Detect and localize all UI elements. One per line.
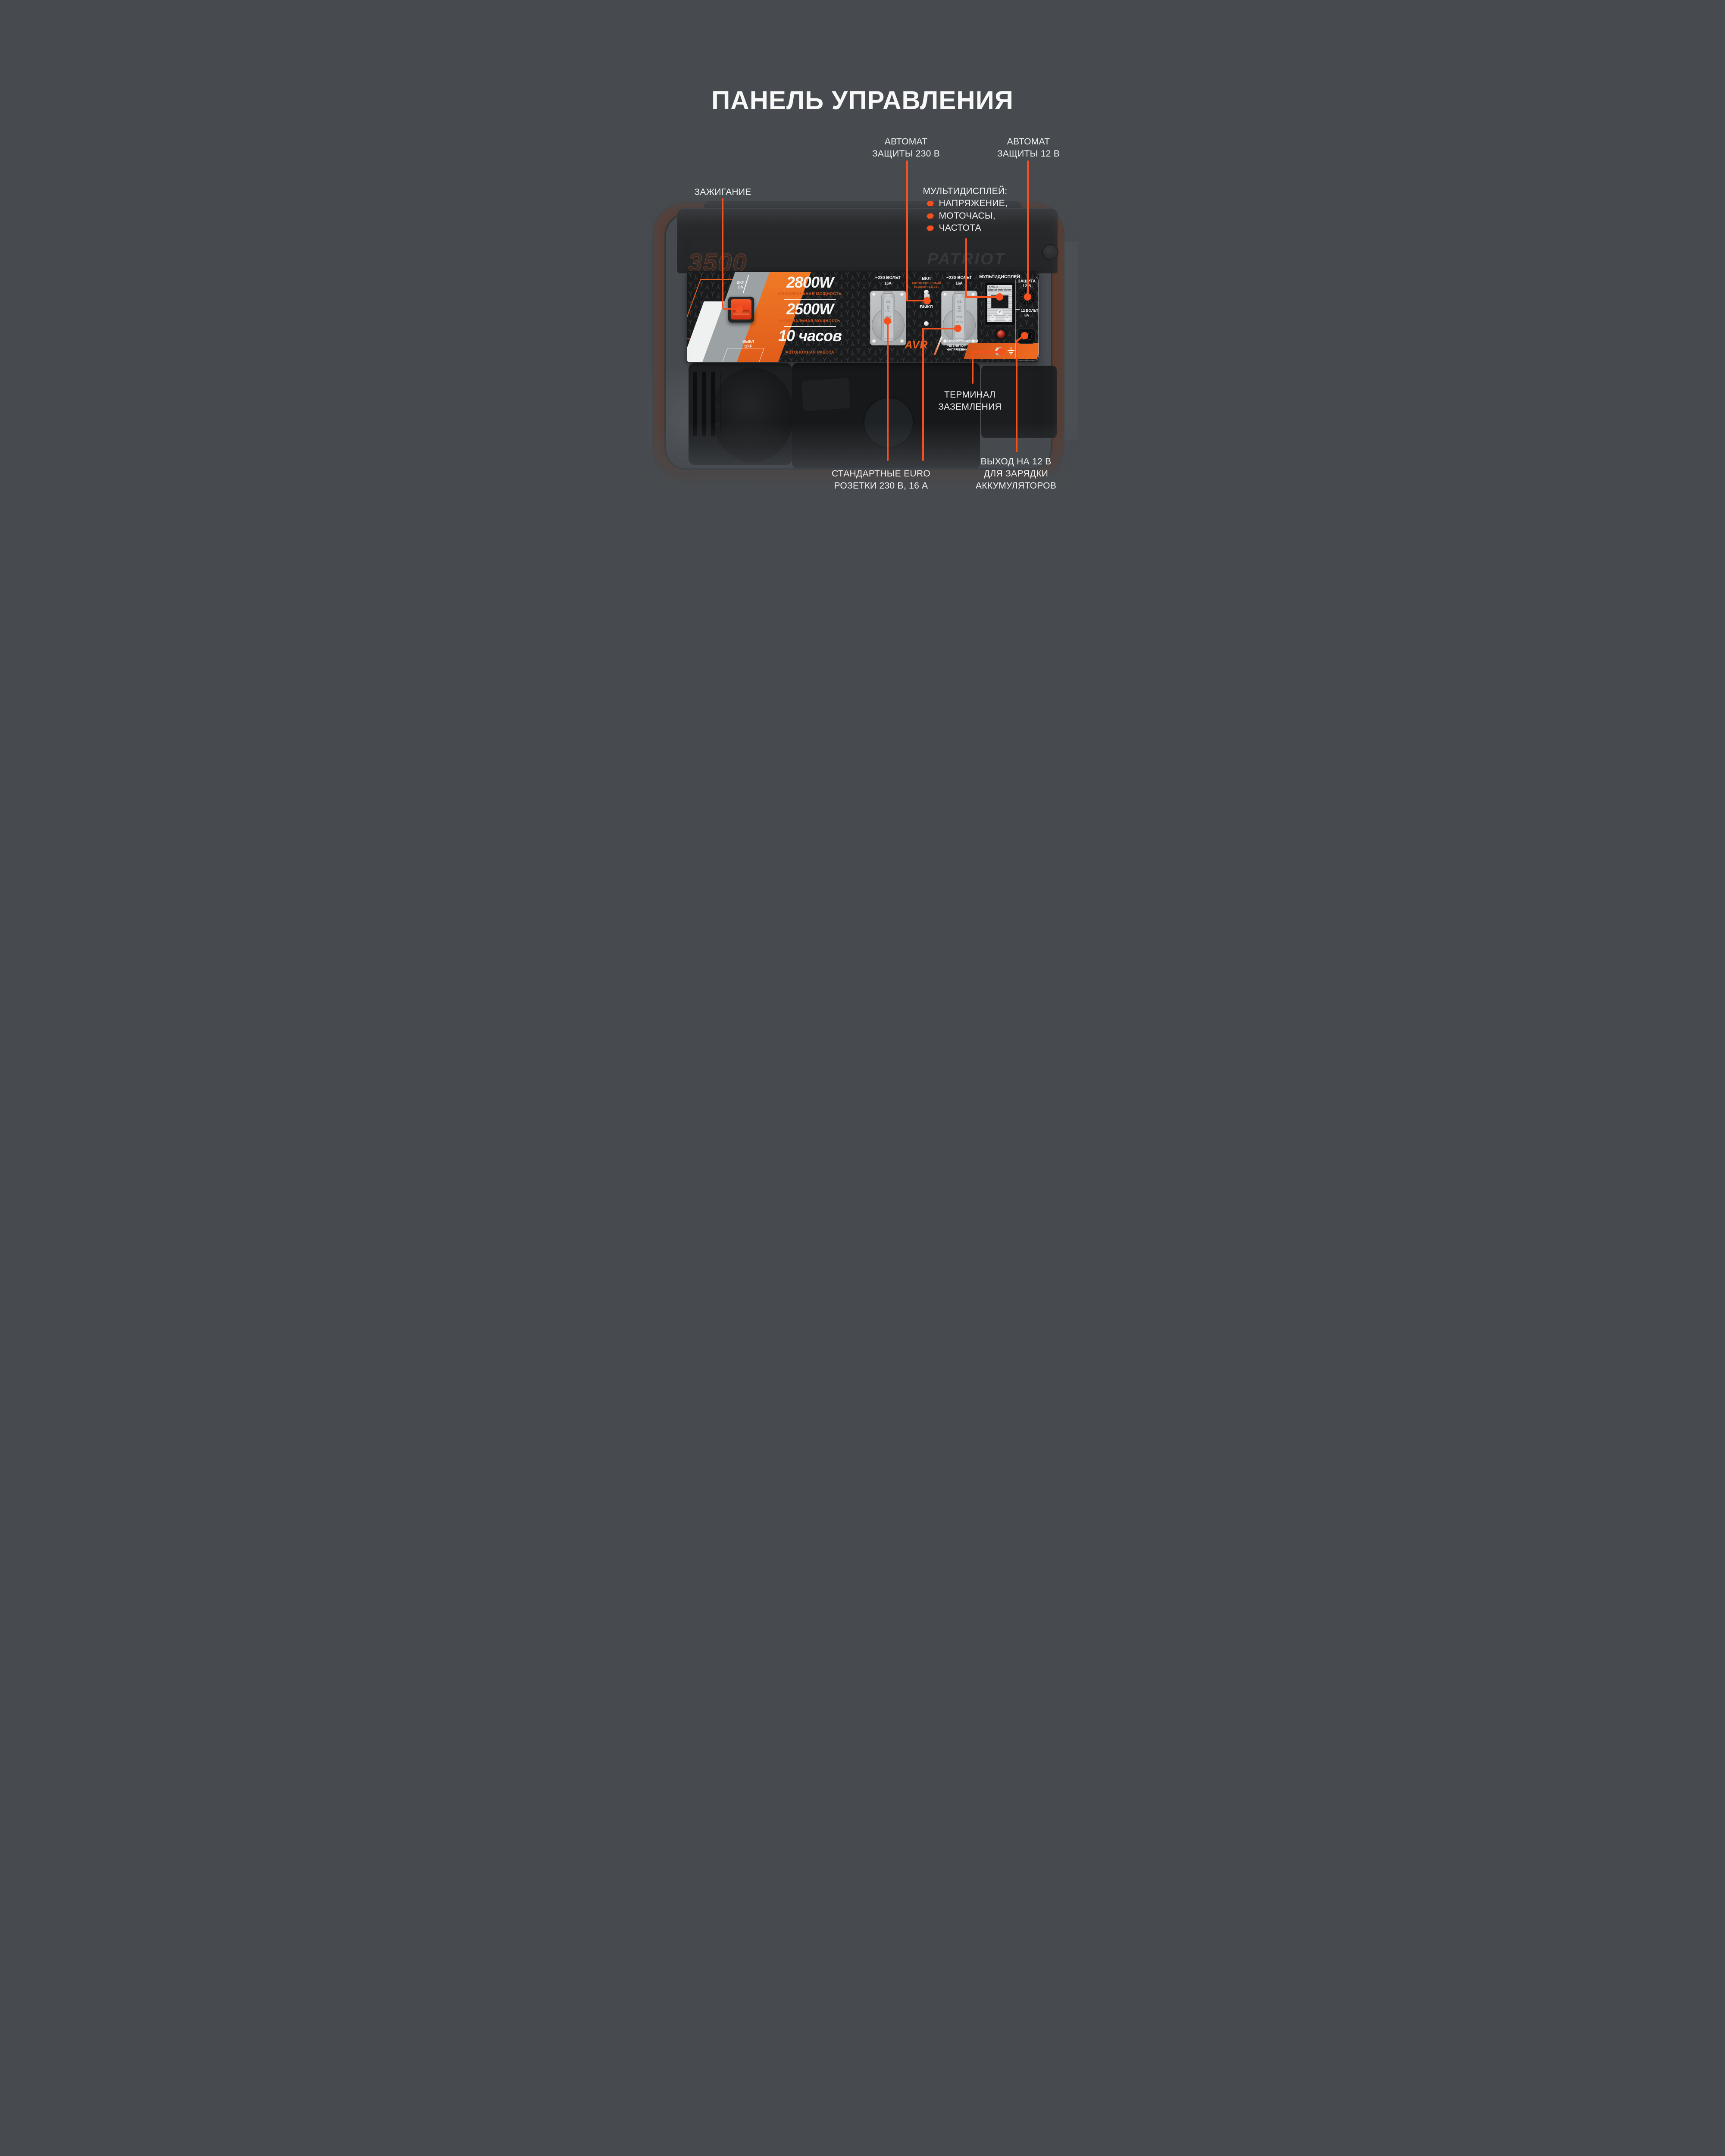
leader-line-ignition — [722, 198, 723, 308]
control-panel: ВКЛON ВЫКЛOFF 2800W МАКСИМАЛЬНАЯ МОЩНОСТ… — [687, 271, 1039, 362]
vent-slots — [693, 372, 720, 436]
ignition-on-label: ВКЛON — [730, 280, 751, 290]
callout-breaker12: АВТОМАТЗАЩИТЫ 12 В — [997, 136, 1060, 160]
callout-ignition: ЗАЖИГАНИЕ — [694, 186, 751, 198]
screw-icon — [924, 321, 929, 326]
divider — [784, 299, 836, 300]
protection-12v-label-2: 12 В — [1001, 284, 1039, 288]
dc-amp-label: 8А — [1001, 313, 1039, 317]
mode-hours: H — [990, 315, 996, 321]
nominal-power-value: 2500W — [758, 302, 862, 316]
callout-breaker230: АВТОМАТЗАЩИТЫ 230 В — [872, 136, 940, 160]
auto-breaker-label-2: ВЫКЛЮЧАТЕЛЬ — [901, 286, 952, 289]
nominal-power-label: НОМИНАЛЬНАЯ МОЩНОСТЬ — [758, 319, 862, 323]
infographic-control-panel: 3500 PATRIOT ВКЛON — [647, 0, 1078, 575]
leader-dot-multidisplay — [996, 293, 1003, 301]
leader-dot-socket1 — [884, 317, 891, 325]
page-title: ПАНЕЛЬ УПРАВЛЕНИЯ — [669, 86, 1057, 115]
leader-dot-breaker12 — [1024, 293, 1031, 301]
leader-line-dc-outlet — [1016, 341, 1017, 452]
euro-socket-2: CE 16 250~ IP44 J158-2 — [941, 291, 977, 345]
callout-out12: ВЫХОД НА 12 ВДЛЯ ЗАРЯДКИАККУМУЛЯТОРОВ — [976, 456, 1056, 492]
leader-line-breaker230 — [906, 160, 908, 301]
dc-icon — [1015, 309, 1020, 312]
screw-icon — [943, 293, 947, 297]
engine-detail — [801, 378, 851, 411]
avr-abbr: AVR — [905, 339, 928, 351]
leader-dot-ignition — [736, 306, 743, 313]
leader-line-ground — [972, 351, 999, 353]
socket-lid: CE 16 250~ IP44 J158-2 — [952, 293, 966, 342]
leader-line-socket2 — [922, 328, 956, 329]
ignition-off-label: ВЫКЛOFF — [738, 339, 759, 349]
screw-icon — [900, 293, 904, 297]
screw-icon — [872, 293, 876, 297]
max-power-label: МАКСИМАЛЬНАЯ МОЩНОСТЬ — [758, 291, 862, 296]
callout-euro-sockets: СТАНДАРТНЫЕ EUROРОЗЕТКИ 230 В, 16 А — [832, 468, 930, 492]
ground-icon — [1008, 347, 1014, 354]
chevron-bullet-icon — [926, 213, 934, 219]
list-item: ЧАСТОТА — [923, 222, 1008, 235]
alternator-face — [712, 367, 794, 462]
leader-line-socket1 — [887, 324, 889, 461]
multidisplay-heading: МУЛЬТИДИСПЛЕЙ: — [923, 185, 1008, 197]
chevron-bullet-icon — [926, 225, 934, 231]
fuel-cap — [1042, 244, 1058, 260]
screw-icon — [900, 339, 904, 343]
callout-multidisplay: МУЛЬТИДИСПЛЕЙ: НАПРЯЖЕНИЕ, МОТОЧАСЫ, ЧАС… — [923, 185, 1008, 235]
runtime-value: 10 часов — [758, 329, 862, 343]
callout-ground: ТЕРМИНАЛЗАЗЕМЛЕНИЯ — [938, 389, 1002, 413]
list-item: НАПРЯЖЕНИЕ, — [923, 197, 1008, 210]
indicator-light — [996, 329, 1006, 339]
leader-line-multidisplay — [965, 296, 998, 298]
chevron-bullet-icon — [926, 201, 934, 207]
leader-line-multidisplay — [965, 238, 967, 298]
leader-dot-ground — [997, 348, 1005, 355]
protection-12v-label-1: ЗАЩИТА — [1001, 279, 1039, 284]
runtime-label: АВТОНОМНАЯ РАБОТА — [758, 350, 862, 354]
socket-lid-label: CE 16 250~ IP44 J158-2 — [955, 297, 964, 339]
max-power-value: 2800W — [758, 276, 862, 289]
engine-cylinder — [863, 397, 914, 448]
leader-line-socket2 — [922, 328, 924, 461]
off-underline — [743, 350, 754, 351]
leader-line-ground — [972, 351, 974, 384]
screw-icon — [872, 339, 876, 343]
dc-volt-label: 12 ВОЛЬТ — [1001, 308, 1039, 313]
leader-dot-breaker230 — [924, 297, 931, 304]
list-item: МОТОЧАСЫ, — [923, 210, 1008, 222]
leader-line-breaker12 — [1027, 160, 1029, 298]
socket2-amp-label: 16А — [933, 281, 985, 285]
